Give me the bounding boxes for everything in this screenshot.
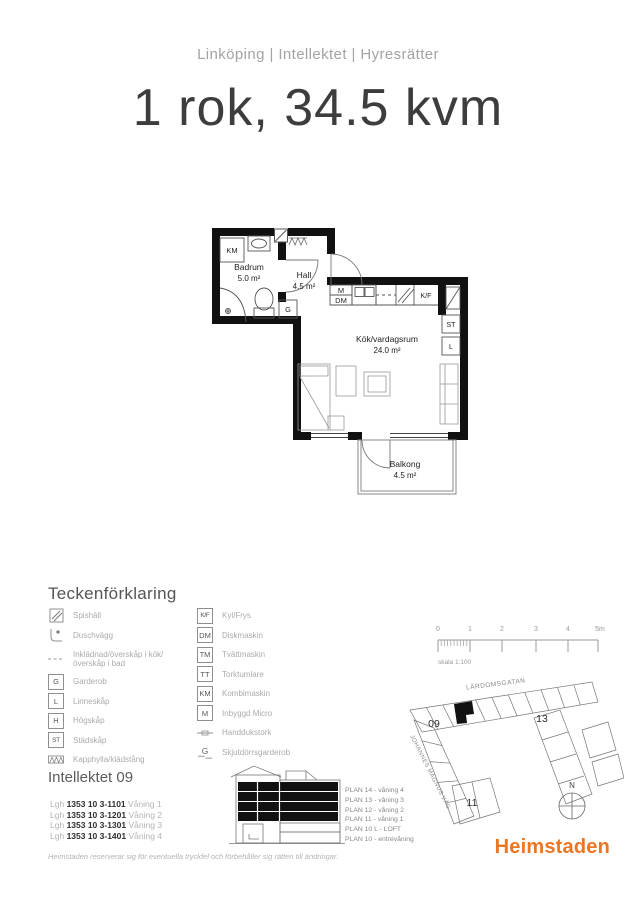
scale-bar: 0 1 2 3 4 5m skala 1:100 xyxy=(432,620,608,668)
svg-text:G: G xyxy=(202,746,209,756)
apartment-row: Lgh 1353 10 3-1201 Våning 2 xyxy=(50,810,162,821)
windows xyxy=(311,434,448,438)
legend-item: KM Kombimaskin xyxy=(197,684,347,704)
legend-left-column: Spishäll Duschvägg Inklädnad/överskåp i … xyxy=(48,606,196,770)
coat-rack-hatch xyxy=(289,238,307,245)
garderob-symbol: G xyxy=(48,674,64,690)
site-plan: LÄRDOMSGATAN JOHANNES MAGNUS VÄG 09 13 1… xyxy=(396,666,624,836)
legend-item: Kapphylla/klädstång xyxy=(48,750,196,770)
apartment-row: Lgh 1353 10 3-1101 Våning 1 xyxy=(50,799,162,810)
label-kf: K/F xyxy=(421,293,432,300)
legend-item: G Garderob xyxy=(48,672,196,692)
skjutdorrsgarderob-symbol: G xyxy=(197,744,213,760)
room-label-kok: Kök/vardagsrum xyxy=(356,334,418,344)
building-heading: Intellektet 09 xyxy=(48,769,133,786)
duschvagg-icon xyxy=(48,627,64,643)
legend-item: M Inbyggd Micro xyxy=(197,704,347,724)
plan-level-row: PLAN 14 - våning 4 xyxy=(345,786,414,796)
hogskap-symbol: H xyxy=(48,713,64,729)
legend-item: DM Diskmaskin xyxy=(197,626,347,646)
svg-text:0: 0 xyxy=(436,626,440,633)
legend-item: ST Städskåp xyxy=(48,731,196,751)
label-l: L xyxy=(449,344,453,351)
floorplan-drawing: Badrum 5.0 m² Hall 4.5 m² Kök/vardagsrum… xyxy=(200,212,480,502)
street-label-johannes-magnus-vag: JOHANNES MAGNUS VÄG xyxy=(408,734,452,811)
room-area-kok: 24.0 m² xyxy=(373,346,400,355)
tvattmaskin-symbol: TM xyxy=(197,647,213,663)
highlighted-floors xyxy=(238,782,338,821)
walls xyxy=(212,228,468,440)
legend-item: Spishäll xyxy=(48,606,196,626)
legend-right-column: K/F Kyl/Frys DM Diskmaskin TM Tvättmaski… xyxy=(197,606,347,762)
label-st: ST xyxy=(447,322,457,329)
page-title: 1 rok, 34.5 kvm xyxy=(0,78,636,138)
legend-heading: Teckenförklaring xyxy=(48,584,177,604)
label-m: M xyxy=(338,286,344,295)
svg-text:1: 1 xyxy=(468,626,472,633)
torktumlare-symbol: TT xyxy=(197,666,213,682)
kombimaskin-symbol: KM xyxy=(197,686,213,702)
label-dm: DM xyxy=(335,296,347,305)
legend-item: H Högskåp xyxy=(48,711,196,731)
legend-item: G Skjutdörrsgarderob xyxy=(197,743,347,763)
breadcrumb: Linköping | Intellektet | Hyresrätter xyxy=(0,46,636,63)
legend-item: Handdukstork xyxy=(197,723,347,743)
diskmaskin-symbol: DM xyxy=(197,627,213,643)
plan-level-row: PLAN 11 - våning 1 xyxy=(345,815,414,825)
building-number-11: 11 xyxy=(467,797,478,809)
svg-text:2: 2 xyxy=(500,626,504,633)
room-label-badrum: Badrum xyxy=(234,262,264,272)
spishall-icon xyxy=(48,608,64,624)
linneskap-symbol: L xyxy=(48,693,64,709)
kylfrys-symbol: K/F xyxy=(197,608,213,624)
micro-symbol: M xyxy=(197,705,213,721)
room-area-badrum: 5.0 m² xyxy=(238,274,261,283)
label-km: KM xyxy=(226,246,237,255)
dashed-line-icon xyxy=(48,651,64,667)
handdukstork-icon xyxy=(197,725,213,741)
stadskap-symbol: ST xyxy=(48,732,64,748)
building-numbers: 09 13 11 xyxy=(428,713,548,809)
svg-text:4: 4 xyxy=(566,626,570,633)
building-number-09: 09 xyxy=(428,718,440,730)
building-number-13: 13 xyxy=(536,713,548,725)
room-area-balkong: 4.5 m² xyxy=(394,471,417,480)
legend-item: Inklädnad/överskåp i kök/överskåp i bad xyxy=(48,645,196,672)
legend-item: K/F Kyl/Frys xyxy=(197,606,347,626)
north-compass: N xyxy=(559,781,585,819)
north-label: N xyxy=(569,781,575,790)
room-label-balkong: Balkong xyxy=(390,459,421,469)
plan-level-row: PLAN 10 L - LOFT xyxy=(345,825,414,835)
furniture xyxy=(298,364,458,430)
plan-level-row: PLAN 13 - våning 3 xyxy=(345,796,414,806)
heimstaden-logo: Heimstaden xyxy=(0,836,610,859)
scale-caption: skala 1:100 xyxy=(438,659,472,666)
entry-door-symbol xyxy=(275,229,288,242)
street-label-lardomsgatan: LÄRDOMSGATAN xyxy=(466,676,526,691)
plan-level-row: PLAN 12 - våning 2 xyxy=(345,806,414,816)
legend-item: TM Tvättmaskin xyxy=(197,645,347,665)
apartment-row: Lgh 1353 10 3-1301 Våning 3 xyxy=(50,820,162,831)
apartment-location-marker xyxy=(454,701,474,724)
legend-item: L Linneskåp xyxy=(48,692,196,712)
scale-ticks: 0 1 2 3 4 5m xyxy=(436,626,605,633)
hatch-icon xyxy=(48,752,64,768)
room-label-hall: Hall xyxy=(297,270,312,280)
label-g: G xyxy=(285,305,291,314)
balcony-door xyxy=(362,440,390,468)
svg-text:5m: 5m xyxy=(595,626,605,633)
legend-item: TT Torktumlare xyxy=(197,665,347,685)
room-area-hall: 4.5 m² xyxy=(293,282,316,291)
svg-text:3: 3 xyxy=(534,626,538,633)
floorplan-page: Linköping | Intellektet | Hyresrätter 1 … xyxy=(0,0,636,900)
legend-item: Duschvägg xyxy=(48,626,196,646)
